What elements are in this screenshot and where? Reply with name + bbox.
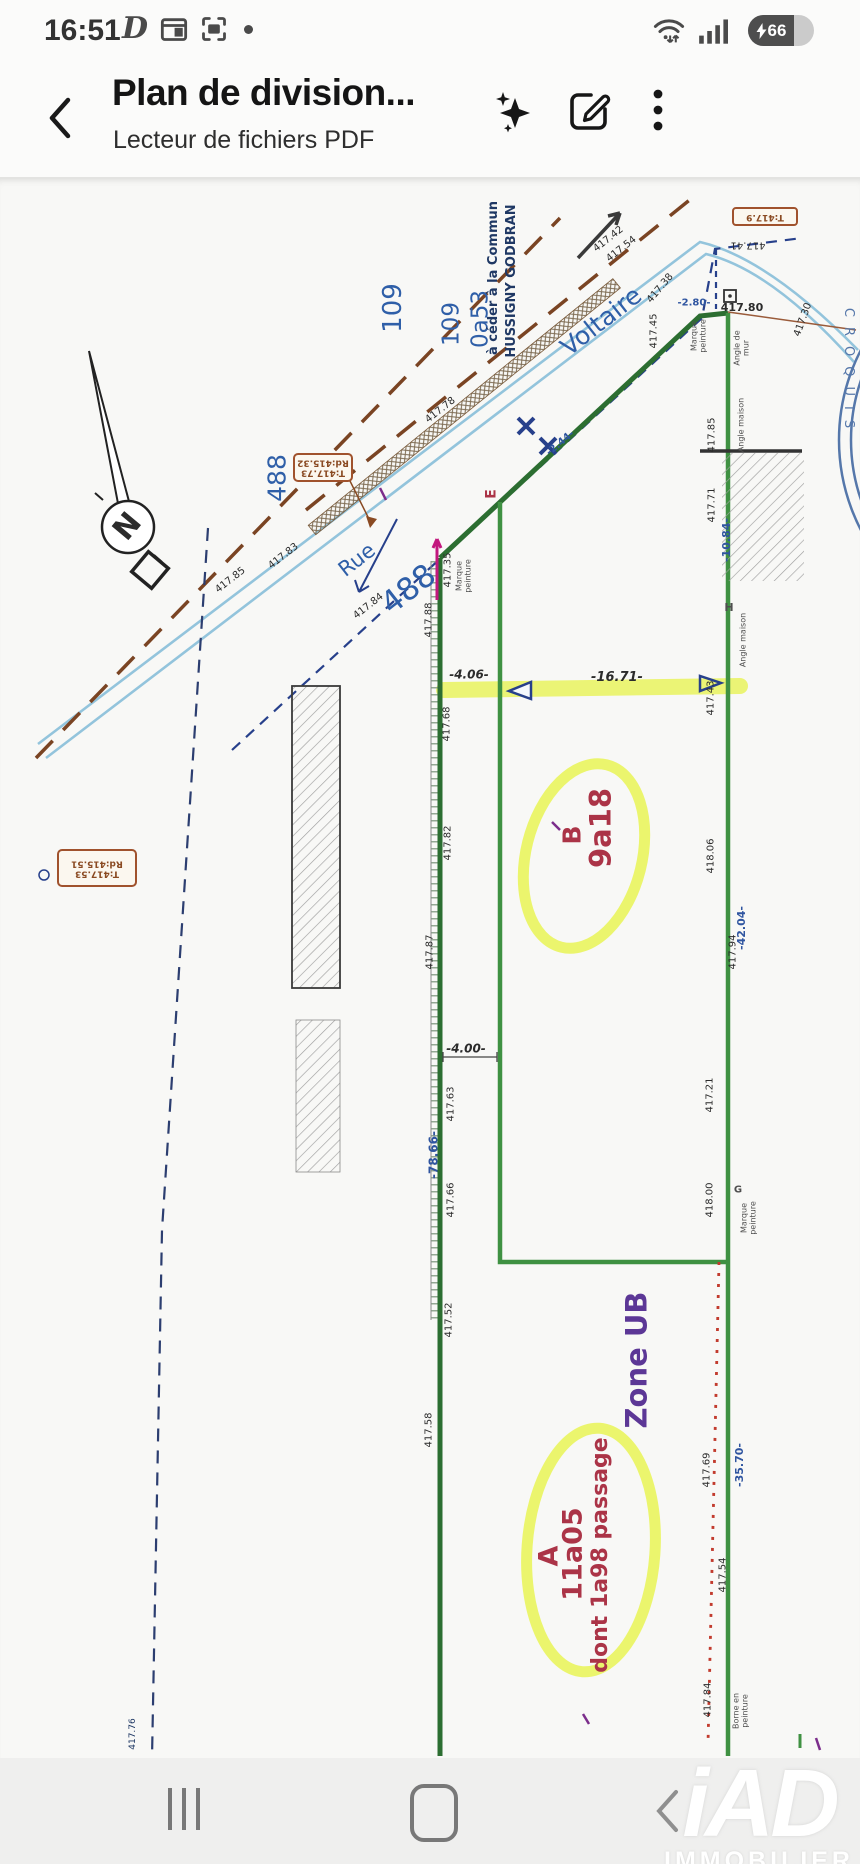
cartouche-488-box	[294, 454, 352, 481]
building-west-1	[292, 686, 340, 988]
calendar-icon	[160, 15, 188, 43]
rue-leader-arrow	[355, 519, 397, 592]
recents-button[interactable]	[168, 1788, 200, 1830]
cartouche-left-box	[58, 850, 136, 886]
wall-hatch-band	[308, 279, 620, 535]
home-button[interactable]	[410, 1784, 458, 1842]
app-name: Lecteur de fichiers PDF	[113, 126, 374, 155]
back-button[interactable]	[38, 90, 82, 146]
wall-line-brown	[728, 312, 856, 330]
division-plan-drawing	[0, 178, 860, 1758]
cartouche-488-arrow	[366, 516, 377, 528]
building-east	[722, 453, 804, 581]
dashed-boundary-brown-road	[306, 198, 692, 510]
survey-cross-marks	[518, 418, 556, 454]
building-west-2	[296, 1020, 340, 1172]
highlight-circle-a	[519, 1424, 664, 1676]
notification-icons: D	[122, 14, 253, 44]
cartouche-left-point	[39, 870, 49, 880]
kebab-menu-icon	[651, 86, 665, 134]
notification-dot-icon	[244, 25, 253, 34]
back-chevron-icon	[652, 1788, 682, 1834]
north-tail	[132, 552, 169, 589]
stamp-arc-inner	[851, 256, 860, 624]
boundary-green-passage	[500, 502, 726, 1262]
document-title: Plan de division...	[112, 72, 415, 114]
edit-pencil-icon	[567, 87, 613, 133]
watermark-caption: IMMOBILIER	[664, 1847, 854, 1864]
screenshot-icon	[200, 15, 228, 43]
back-nav-button[interactable]	[652, 1788, 682, 1839]
ai-assist-button[interactable]	[486, 84, 538, 136]
battery-indicator: 66	[748, 15, 814, 46]
overflow-menu-button[interactable]	[632, 84, 684, 136]
navigation-bar: iAD IMMOBILIER	[0, 1758, 860, 1864]
cartouche-top-box	[733, 208, 797, 225]
purple-tick-1	[380, 488, 386, 500]
north-needle	[89, 351, 131, 514]
north-circle	[102, 501, 154, 553]
boundary-red-dashed	[708, 1262, 719, 1744]
sparkles-icon	[488, 86, 536, 134]
dashed-boundary-blue-west	[152, 528, 208, 1758]
signal-icon	[698, 16, 728, 46]
status-bar: 16:51 D	[0, 0, 860, 62]
road-direction-arrow	[578, 213, 620, 258]
wifi-icon	[652, 16, 686, 46]
dim-tick-4-00	[443, 1052, 497, 1062]
highlight-width-band	[444, 686, 740, 690]
header-divider	[0, 177, 860, 179]
purple-tick-2	[552, 822, 560, 830]
system-status-icons: 66	[652, 15, 814, 46]
survey-point-dot	[728, 294, 732, 298]
charging-bolt-icon	[756, 23, 767, 39]
purple-tick-3	[583, 1714, 589, 1724]
purple-tick-4	[816, 1738, 820, 1750]
edit-button[interactable]	[564, 84, 616, 136]
battery-percent: 66	[768, 21, 787, 41]
phone-screen: 16:51 D	[0, 0, 860, 1864]
app-header: Plan de division... Lecteur de fichiers …	[0, 62, 860, 178]
stamp-arc-outer	[839, 244, 860, 636]
app-notification-icon: D	[122, 14, 148, 44]
brand-watermark: iAD IMMOBILIER	[664, 1761, 854, 1864]
clock: 16:51	[44, 14, 121, 48]
highlight-circle-b	[505, 751, 663, 961]
pdf-canvas[interactable]: 1091090a53à céder à la CommunHUSSIGNY GO…	[0, 178, 860, 1758]
boundary-green-diagonal	[440, 313, 728, 558]
watermark-logo: iAD	[664, 1761, 854, 1847]
